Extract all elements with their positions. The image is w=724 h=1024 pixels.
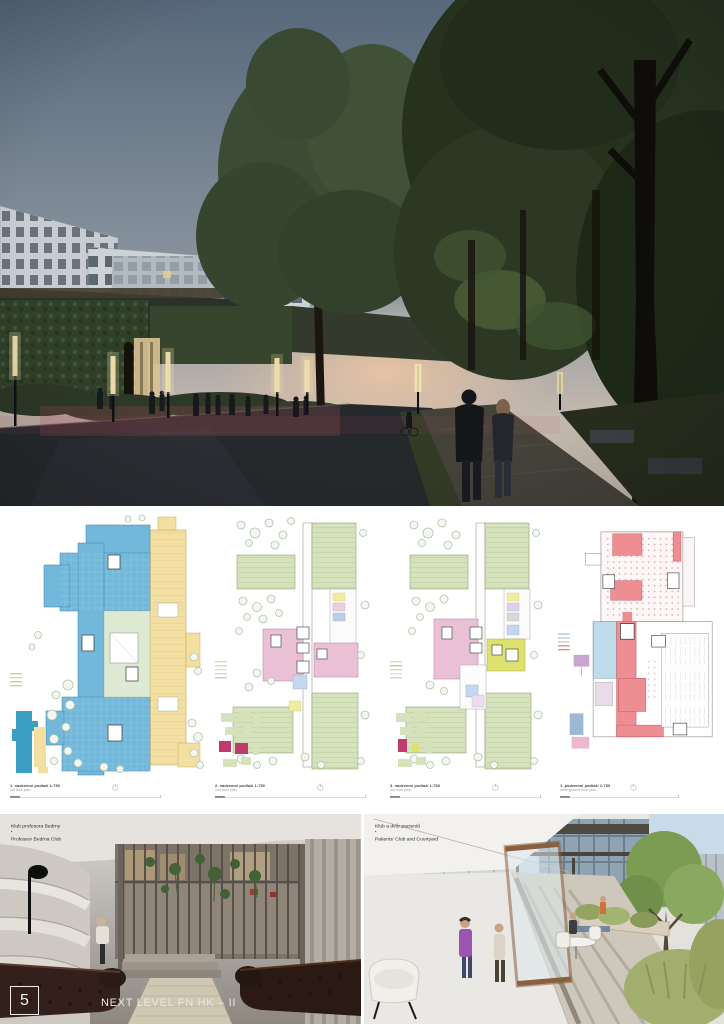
right-render-label: Klub a dvůr pacientů • Patients' Club an… (375, 822, 438, 843)
plan-label-cz: 1. podzemní podlaží 1:750 (560, 784, 724, 788)
floor-plans-row: 1. nadzemní podlaží 1:750 1st floor plan (0, 506, 724, 814)
plan-legend (10, 673, 22, 686)
scale-bar (390, 796, 541, 798)
scale-bar (560, 796, 679, 798)
steps (119, 954, 221, 978)
floor-plan-1-drawing (8, 515, 205, 783)
north-arrow-icon (492, 785, 498, 791)
wing-yellow (150, 517, 200, 767)
scale-bar (10, 796, 161, 798)
courtyard (104, 611, 150, 697)
board-title: NEXT LEVEL FN HK – II (101, 997, 236, 1009)
vignette (0, 0, 724, 506)
plan-label-en: 1st floor plan (10, 788, 181, 792)
plan-3-caption: 3. nadzemní podlaží 1:750 3rd floor plan (390, 784, 561, 798)
floor-plan-3-drawing (388, 515, 560, 783)
pivot-door (505, 842, 571, 986)
hero-render (0, 0, 724, 506)
upper-hall (585, 532, 694, 622)
floor-plan-3: 3. nadzemní podlaží 1:750 3rd floor plan (388, 515, 560, 811)
plan-label-en: underground floor plan (560, 788, 724, 792)
plan-4-caption: 1. podzemní podlaží 1:750 underground fl… (560, 784, 724, 798)
label-english: Professor Bedrna Club (11, 835, 61, 842)
label-english: Patients' Club and Courtyard (375, 835, 438, 842)
plan-legend (390, 661, 402, 678)
plan-label-en: 2nd floor plan (215, 788, 386, 792)
north-arrow-icon (630, 785, 636, 791)
key-plan (12, 711, 48, 773)
terrace-column (330, 589, 356, 645)
plan-label-cz: 1. nadzemní podlaží 1:750 (10, 784, 181, 788)
atrium-blue (293, 675, 307, 689)
patients-club-courtyard-render: Klub a dvůr pacientů • Patients' Club an… (364, 814, 724, 1024)
plan-legend (215, 661, 227, 678)
atrium (460, 665, 486, 709)
north-arrow-icon (112, 785, 118, 791)
label-czech: Klub a dvůr pacientů (375, 822, 438, 829)
courtyard-drawing (364, 814, 724, 1024)
lower-volume (593, 612, 712, 737)
floor-plan-4-drawing (558, 515, 720, 783)
plan-1-caption: 1. nadzemní podlaží 1:750 1st floor plan (10, 784, 181, 798)
floor-plan-2-drawing (213, 515, 390, 783)
plan-2-caption: 2. nadzemní podlaží 1:750 2nd floor plan (215, 784, 386, 798)
left-render-label: Klub profesora Bedrny • Professor Bedrna… (11, 822, 61, 843)
north-arrow-icon (317, 785, 323, 791)
parking (661, 633, 708, 727)
floor-plan-4: 1. podzemní podlaží 1:750 underground fl… (558, 515, 720, 811)
plan-legend (558, 633, 570, 650)
floor-plan-2: 2. nadzemní podlaží 1:750 2nd floor plan (213, 515, 390, 811)
page-number-badge: 5 (10, 986, 39, 1015)
key-plan (570, 655, 590, 749)
bottom-renders: Klub profesora Bedrny • Professor Bedrna… (0, 814, 724, 1024)
hero-street-dusk-render (0, 0, 724, 506)
floor-plan-1: 1. nadzemní podlaží 1:750 1st floor plan (8, 515, 205, 811)
terrace-column (504, 589, 530, 639)
presentation-board: 1. nadzemní podlaží 1:750 1st floor plan (0, 0, 724, 1024)
plan-label-cz: 3. nadzemní podlaží 1:750 (390, 784, 561, 788)
scale-bar (215, 796, 366, 798)
plan-label-en: 3rd floor plan (390, 788, 561, 792)
club-interior-drawing (0, 814, 361, 1024)
label-czech: Klub profesora Bedrny (11, 822, 61, 829)
plan-label-cz: 2. nadzemní podlaží 1:750 (215, 784, 386, 788)
club-interior-render: Klub profesora Bedrny • Professor Bedrna… (0, 814, 361, 1024)
